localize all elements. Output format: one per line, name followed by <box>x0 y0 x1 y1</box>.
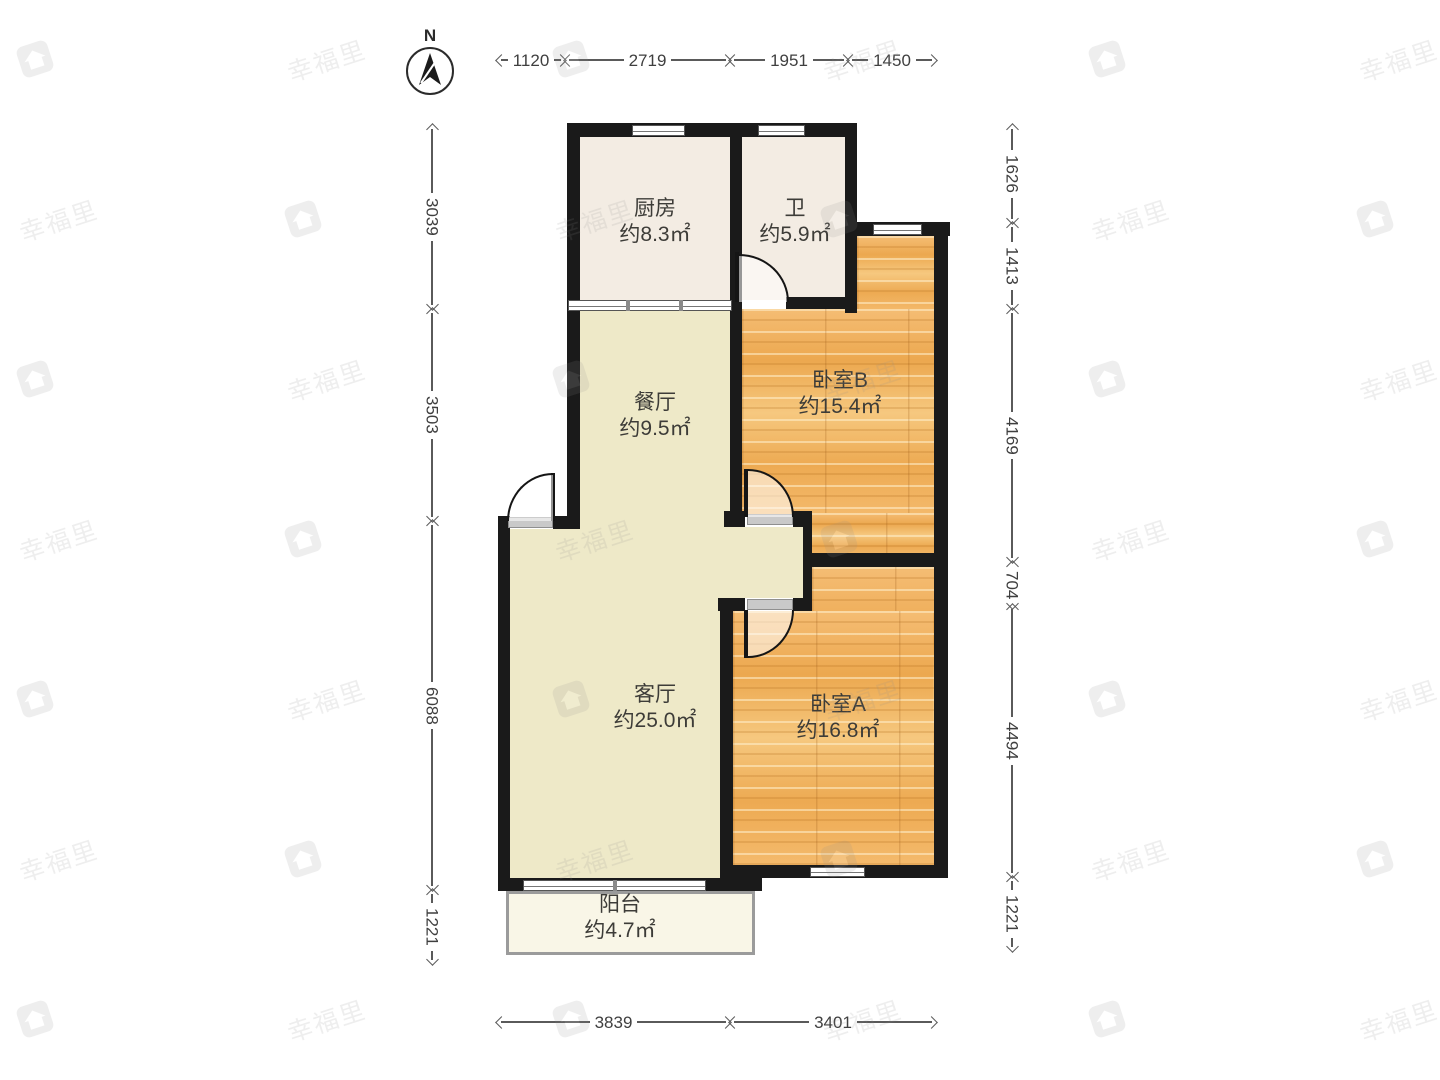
dimension-line <box>431 525 432 682</box>
room-label-bedroom-a: 卧室A 约16.8㎡ <box>797 692 880 744</box>
dimension-arrow-icon <box>1006 603 1019 616</box>
house-icon <box>1086 678 1129 721</box>
wall-bedrooms-divider <box>803 553 948 567</box>
wall-hall-top-left <box>724 511 745 527</box>
room-name: 餐厅 <box>619 390 690 416</box>
wall-entry <box>553 516 580 529</box>
wall-bath-right <box>845 123 857 313</box>
dimension-label: 4494 <box>1004 717 1021 765</box>
watermark-house-icon <box>1354 518 1397 561</box>
dimension-arrow-icon <box>1006 307 1019 320</box>
compass-icon <box>406 47 454 95</box>
house-icon <box>282 518 325 561</box>
dimension-arrow-icon <box>728 1016 741 1029</box>
dimension-arrow-icon <box>1006 123 1019 136</box>
room-area: 约8.3㎡ <box>619 222 690 248</box>
hallway-floor <box>728 527 803 598</box>
watermark-house-icon <box>282 838 325 881</box>
dimension-arrow-icon <box>426 307 439 320</box>
watermark-house-icon <box>282 198 325 241</box>
house-icon <box>1086 358 1129 401</box>
window-kitchen <box>632 125 685 136</box>
house-icon <box>282 838 325 881</box>
dimension-arrow-icon <box>925 54 938 67</box>
dimension-label: 4169 <box>1004 412 1021 460</box>
dimension-line <box>431 729 432 886</box>
dimension-arrow-icon <box>1006 940 1019 953</box>
room-label-dining: 餐厅 约9.5㎡ <box>619 390 690 442</box>
watermark-text: 幸福里 <box>1086 510 1174 569</box>
dimension-line <box>431 313 432 391</box>
dimension-arrow-icon <box>925 1016 938 1029</box>
house-icon <box>1086 38 1129 81</box>
dimension-segment: 2719 <box>565 51 730 69</box>
watermark-text: 幸福里 <box>14 830 102 889</box>
room-area: 约4.7㎡ <box>584 918 655 944</box>
dimension-label: 1120 <box>508 52 555 69</box>
watermark-house-icon <box>14 358 57 401</box>
watermark-text: 幸福里 <box>1354 990 1440 1049</box>
room-label-living: 客厅 约25.0㎡ <box>614 682 697 734</box>
room-area: 约25.0㎡ <box>614 708 697 734</box>
house-icon <box>1086 998 1129 1041</box>
entry-door-arc-icon <box>507 473 553 521</box>
dimension-line <box>431 241 432 305</box>
watermark-house-icon <box>1086 998 1129 1041</box>
bedroom-b-floor-upper <box>857 236 936 311</box>
dimension-arrow-icon <box>728 54 741 67</box>
wall-left-upper <box>567 123 580 529</box>
dimension-arrow-icon <box>426 888 439 901</box>
wall-dining-bedroom-b-divider <box>730 300 742 517</box>
dimension-segment: 1120 <box>497 51 565 69</box>
room-name: 卧室A <box>797 692 880 718</box>
house-icon <box>1354 518 1397 561</box>
dimension-line <box>501 1021 590 1022</box>
watermark-text: 幸福里 <box>1354 670 1440 729</box>
window-bedroom-b <box>873 224 922 235</box>
window-mullion <box>626 300 630 311</box>
threshold-bedroom-a <box>747 599 793 610</box>
dimension-line <box>1011 459 1012 558</box>
dimension-arrow-icon <box>426 123 439 136</box>
watermark-house-icon <box>14 678 57 721</box>
watermark-text: 幸福里 <box>14 510 102 569</box>
dimension-label: 1626 <box>1004 150 1021 198</box>
window-bathroom <box>758 125 805 136</box>
dimension-arrow-icon <box>1006 875 1019 888</box>
dimension-segment: 1951 <box>730 51 848 69</box>
dimension-segment: 3839 <box>497 1013 730 1031</box>
dimension-line <box>857 1021 932 1022</box>
watermark-house-icon <box>282 518 325 561</box>
house-icon <box>14 678 57 721</box>
watermark-house-icon <box>14 998 57 1041</box>
room-area: 约5.9㎡ <box>759 222 830 248</box>
watermark-house-icon <box>1086 38 1129 81</box>
house-icon <box>14 38 57 81</box>
dimension-line <box>1011 765 1012 873</box>
dimension-segment: 1413 <box>1003 223 1021 309</box>
room-name: 客厅 <box>614 682 697 708</box>
dimension-line <box>569 59 624 60</box>
watermark-text: 幸福里 <box>1086 190 1174 249</box>
dimension-label: 3503 <box>424 391 441 439</box>
dimension-arrow-icon <box>426 519 439 532</box>
bedroom-b-floor-lower <box>803 513 936 557</box>
dimension-arrow-icon <box>563 54 576 67</box>
dimension-segment: 704 <box>1003 562 1021 605</box>
room-area: 约15.4㎡ <box>799 394 882 420</box>
watermark-text: 幸福里 <box>14 190 102 249</box>
dimension-segment: 1450 <box>848 51 936 69</box>
watermark-text: 幸福里 <box>1354 30 1440 89</box>
dimension-segment: 4169 <box>1003 309 1021 562</box>
dimension-label: 1221 <box>424 903 441 951</box>
room-area: 约16.8㎡ <box>797 718 880 744</box>
watermark-text: 幸福里 <box>282 30 370 89</box>
dimension-line <box>1011 313 1012 412</box>
compass-north-label: N <box>424 26 436 46</box>
dimension-segment: 3039 <box>423 125 441 309</box>
wall-bedroom-a-top-right <box>793 598 812 611</box>
dimension-label: 3039 <box>424 193 441 241</box>
window-kitchen-dining-pass <box>568 300 732 311</box>
wall-right <box>934 222 948 878</box>
wall-bath-bottom <box>786 297 857 309</box>
watermark-text: 幸福里 <box>282 670 370 729</box>
dimension-label: 3401 <box>809 1014 857 1031</box>
dimension-label: 1951 <box>765 52 813 69</box>
watermark-text: 幸福里 <box>1354 350 1440 409</box>
room-label-balcony: 阳台 约4.7㎡ <box>584 892 655 944</box>
window-mullion <box>679 300 683 311</box>
house-icon <box>1354 198 1397 241</box>
wall-top <box>567 123 857 137</box>
room-name: 厨房 <box>619 196 690 222</box>
window-mullion <box>613 880 617 891</box>
dimension-line <box>431 129 432 193</box>
watermark-text: 幸福里 <box>1086 830 1174 889</box>
watermark-house-icon <box>1086 678 1129 721</box>
window-bedroom-a <box>810 867 865 877</box>
dimension-segment: 6088 <box>423 521 441 890</box>
dimension-arrow-icon <box>1006 221 1019 234</box>
watermark-house-icon <box>1354 838 1397 881</box>
dimension-line <box>431 439 432 517</box>
watermark-house-icon <box>1354 198 1397 241</box>
dimension-label: 2719 <box>624 52 672 69</box>
house-icon <box>14 998 57 1041</box>
room-label-kitchen: 厨房 约8.3㎡ <box>619 196 690 248</box>
room-name: 卧室B <box>799 368 882 394</box>
dimension-segment: 1626 <box>1003 125 1021 223</box>
dimension-segment: 3503 <box>423 309 441 521</box>
room-area: 约9.5㎡ <box>619 416 690 442</box>
wall-left-lower <box>498 516 510 891</box>
dimension-label: 3839 <box>590 1014 638 1031</box>
north-arrow-icon <box>408 49 452 93</box>
dimension-label: 1450 <box>868 52 916 69</box>
house-icon <box>282 198 325 241</box>
watermark-text: 幸福里 <box>282 350 370 409</box>
dimension-segment: 4494 <box>1003 605 1021 877</box>
dimension-label: 1221 <box>1004 890 1021 938</box>
dimension-segment: 1221 <box>1003 877 1021 951</box>
room-name: 卫 <box>759 196 830 222</box>
dimension-label: 1413 <box>1004 242 1021 290</box>
dimension-arrow-icon <box>426 953 439 966</box>
dimension-arrow-icon <box>495 1016 508 1029</box>
house-icon <box>1354 838 1397 881</box>
wall-bedroom-a-left <box>720 598 733 878</box>
dimension-arrow-icon <box>495 54 508 67</box>
floorplan-page: { "compass": {"label": "N"}, "watermark"… <box>0 0 1440 1080</box>
dimension-segment: 1221 <box>423 890 441 964</box>
dimension-arrow-icon <box>846 54 859 67</box>
dimension-segment: 3401 <box>730 1013 936 1031</box>
watermark-house-icon <box>1086 358 1129 401</box>
dimension-line <box>1011 609 1012 717</box>
dimension-line <box>637 1021 726 1022</box>
room-name: 阳台 <box>584 892 655 918</box>
watermark-text: 幸福里 <box>282 990 370 1049</box>
dimension-label: 6088 <box>424 682 441 730</box>
room-label-bathroom: 卫 约5.9㎡ <box>759 196 830 248</box>
dimension-line <box>734 1021 809 1022</box>
watermark-house-icon <box>14 38 57 81</box>
room-label-bedroom-b: 卧室B 约15.4㎡ <box>799 368 882 420</box>
house-icon <box>14 358 57 401</box>
